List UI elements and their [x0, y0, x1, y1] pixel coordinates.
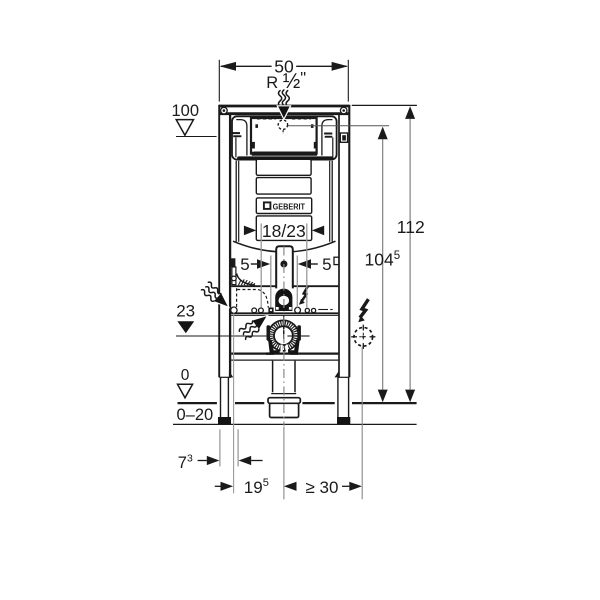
svg-text:R ½": R ½" [266, 69, 306, 93]
svg-text:23: 23 [176, 301, 195, 320]
svg-text:0–20: 0–20 [177, 406, 214, 424]
svg-text:100: 100 [172, 102, 200, 120]
svg-text:≥ 30: ≥ 30 [306, 478, 339, 497]
svg-text:18/23: 18/23 [262, 221, 306, 241]
svg-text:5: 5 [240, 255, 249, 274]
svg-text:5: 5 [322, 255, 331, 274]
svg-text:0: 0 [181, 367, 190, 384]
svg-text:GEBERIT: GEBERIT [273, 201, 306, 211]
svg-text:112: 112 [397, 217, 425, 237]
